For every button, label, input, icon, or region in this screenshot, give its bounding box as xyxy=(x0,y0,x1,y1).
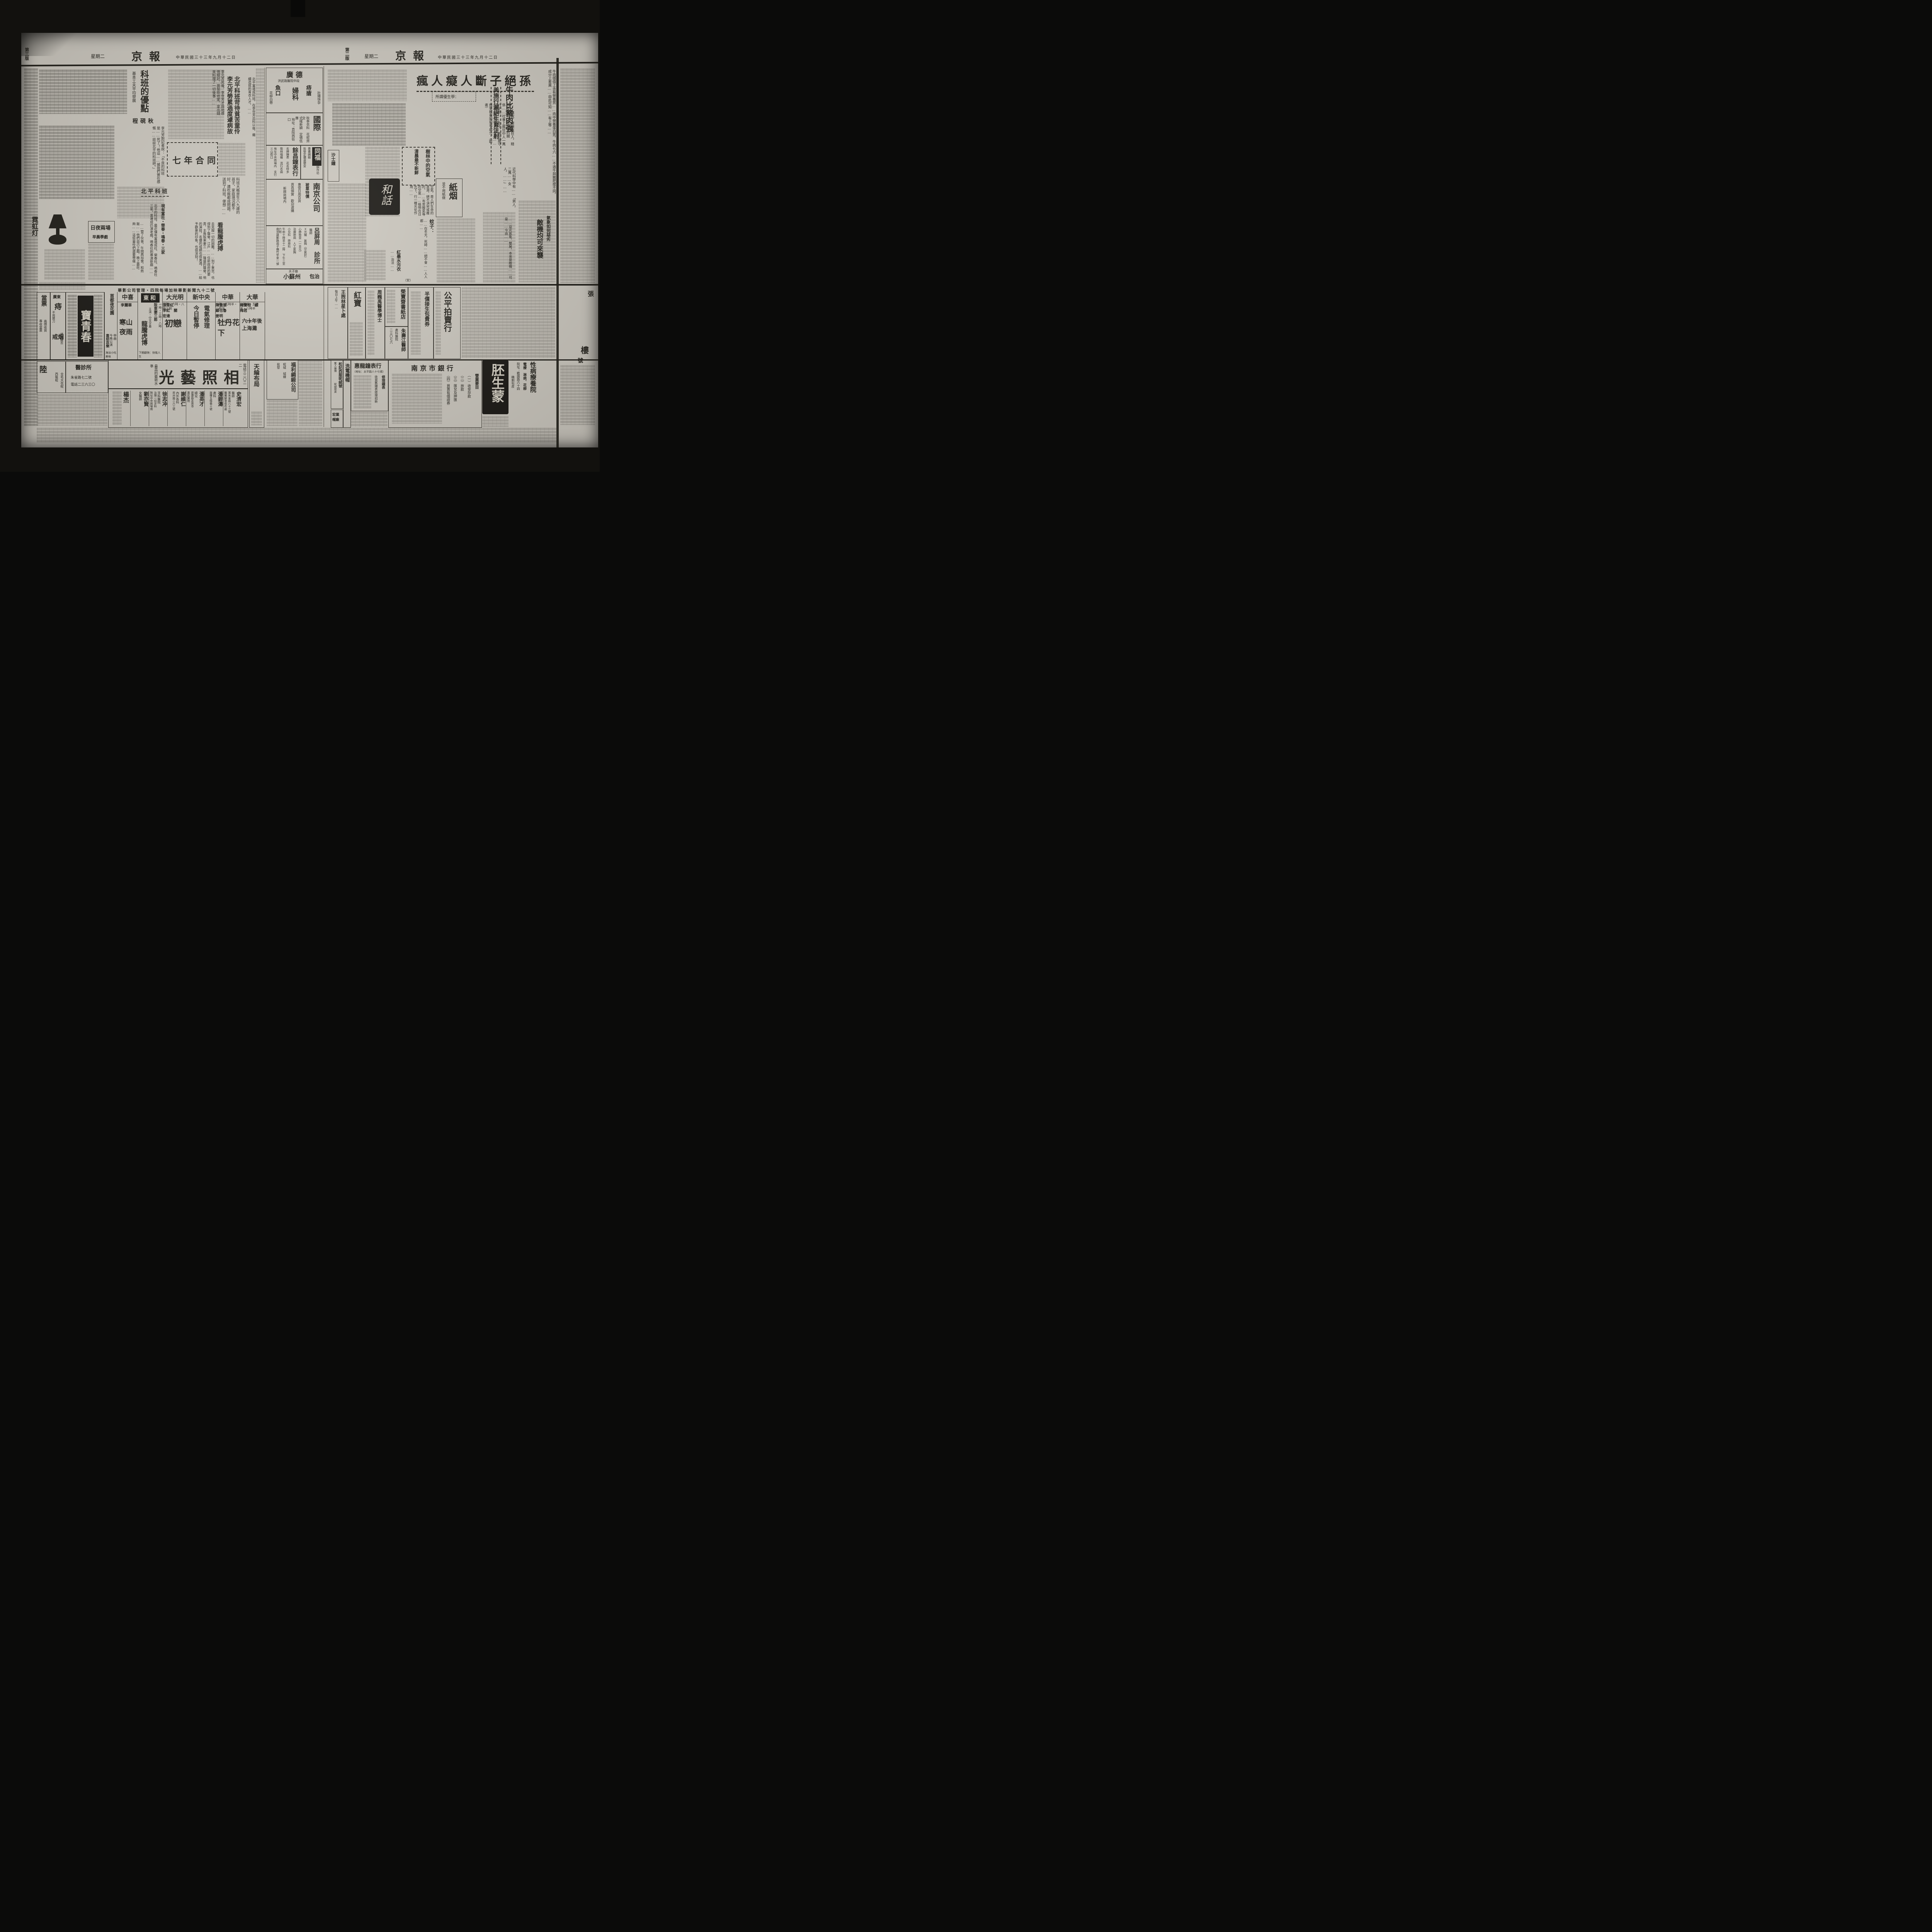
weekday-left: 星期二 xyxy=(91,53,105,60)
meishi-headline: 美施行滅絕生育注射 xyxy=(491,87,501,164)
edge-char-zhang: 張 xyxy=(588,289,594,298)
beiping-keban-body: 北平的科班，最近僅有富連成社、榮春社、鳴春社三家。富連成仍演老戲，鳴春社則專演新… xyxy=(146,204,157,279)
bank-item2: （二）放款 xyxy=(459,374,464,424)
songji-line2: 呢絨現貨 xyxy=(333,383,337,399)
gongping-auction-ad: 公平拍賣行 xyxy=(434,287,461,359)
lvpingzhou-name: 呂屏周 xyxy=(313,228,320,251)
shulin-box: 樹林中的空氣 清晨最不新鮮 xyxy=(402,147,435,185)
illegible-text-columns xyxy=(560,68,595,283)
doctor-line: 醫藥解答收件處 xyxy=(224,391,227,425)
doctor-line: 鼓樓五條巷十號 xyxy=(209,391,213,425)
nanjing-line2: 專營日用百貨 xyxy=(297,183,301,222)
doctor-line: 建康路永恩寺 xyxy=(190,391,194,425)
jiesheng-name: 半價接生包費券 xyxy=(423,291,429,355)
lamp-shade-icon xyxy=(49,214,66,228)
illegible-text-columns xyxy=(37,394,107,426)
fuli-line2: 批發 xyxy=(276,363,280,397)
keban-youdian-body: 李元芳死後，李世芳才與他感情極好，曾幫助他家，拿出錢來料理了一切後事…… xyxy=(153,70,224,116)
doctor-line: 院址中央商場南 xyxy=(150,391,153,425)
tongfu-name: 同福 xyxy=(312,147,321,166)
xingbing-hospital-ad: 性病療養院 電療 淋病、花柳 院址：瞻園路六十四 精割包皮 xyxy=(509,360,538,427)
illegible-text-columns xyxy=(437,218,475,282)
lvpingzhou-line2: 心肺檢查（一百元） xyxy=(298,228,302,266)
guangyi-side-note: 最高的藝術水準 xyxy=(149,364,158,388)
beiping-keban-subtitle: 現有富社・榮春・鳴春・三家 xyxy=(160,204,165,279)
riye-liangchang-body: ……管了伙食，午間再加食，和熱飯……他們自己上戲，晚上最吃夠……這些童伶們還要學… xyxy=(116,222,144,280)
guangde-item-yukou: 魚口 xyxy=(274,85,281,104)
nanjing-line4: 新興商場內 xyxy=(282,187,286,222)
page-edge-heavy-line xyxy=(556,58,559,447)
peisheng-name: 胚生蒙 xyxy=(488,363,505,412)
yuchang-line2: 歌林唱機 流行名曲 xyxy=(280,147,283,177)
shulin-title1: 樹林中的空氣 xyxy=(425,149,430,182)
wangxulin-fortune-ad: 王煦林星卜處 每日上午…… xyxy=(328,287,348,359)
fuli-line1: 呢絨 絨線 xyxy=(282,363,286,397)
nanjing-name: 南京公司 xyxy=(311,183,320,222)
guoji-fabric-ad: 國際 秋季衣料 花呢齊全 式樣新穎 定價低廉 地址：貢院西街口 xyxy=(266,113,323,145)
yuchang-name: 餘昌鐘表行 xyxy=(291,147,299,177)
tongfu-silk-ad: 同福 專賣綢緞 批發定價還便宜 銅作坊 xyxy=(301,145,323,179)
liyuanfang-lead: 北平富連成科班，在李世芳出科以後，繼續造就的青衣人才，…… xyxy=(248,77,255,137)
yuchang-watch-ad: 餘昌鐘表行 名牌鐘表 花名特多 歌林唱機 流行名曲 地址中央商場內 支行三山街口 xyxy=(266,145,301,179)
illegible-text-columns xyxy=(218,143,245,176)
qinian-hetong-title: 七年合同 xyxy=(172,154,219,166)
illegible-text-columns xyxy=(435,291,441,355)
wangxulin-line1: 每日上午…… xyxy=(334,290,338,336)
fengren-kicker: 所謂優生學： xyxy=(435,94,459,99)
guangdong-name: 廣東 xyxy=(53,294,61,299)
niurou-headline: 牛肉比豬肉強 xyxy=(504,86,514,170)
illegible-text-columns xyxy=(364,250,386,281)
xingbing-line2: 院址：瞻園路六十四 xyxy=(516,362,520,420)
bank-item1: （一）收受存款 xyxy=(466,374,471,424)
theater-zhonghua: 中華 二時・五時半・八時半 陳雲裳 顧也魯 姜明 主演 牡丹花下 xyxy=(215,292,240,359)
donghe-times: 一時・三時・八時 xyxy=(158,303,162,334)
newspaper-scan: 第三版 星期二 京報 中華民國三十三年九月十二日 第二版 星期二 京報 中華民國… xyxy=(0,0,600,472)
lvpingzhou-line3: 治療肺病 人工氣胸 xyxy=(293,228,296,266)
tianlun-fabric-ad: 天綸布局 xyxy=(249,360,264,428)
doctor-title: 內外各科 xyxy=(175,391,179,411)
zhonghua-name: 中華 xyxy=(216,293,240,302)
theater-xinzhongyang: 新中央 電氣修理 今日暫停 xyxy=(187,292,216,359)
qinian-hetong-body: 科班大概是生八九歲的孩子，家庭境況都不好，連吃飯都成問題，送到了科班，便想…… xyxy=(167,177,240,215)
guangdong-line1: 不用開刀 xyxy=(52,311,55,330)
lvpingzhou-line1: Ｘ光機 氣胸（空氣針） xyxy=(304,228,307,266)
huilong-sub: （地址：太平路八十七號） xyxy=(353,370,385,374)
dangpiao-line1: 高價收買 xyxy=(43,320,47,354)
zhensuo-name: 醫診所 xyxy=(75,364,92,371)
doctor-listing-panbitao: 潘碧濤 產科 鼓樓五條巷十號 xyxy=(204,391,223,426)
zhongxi-name: 中喜 xyxy=(117,293,138,302)
zhensuo-line1: 朱雀路七二號 xyxy=(71,375,92,380)
zhensuo-line2: 電話二三六三〇 xyxy=(71,382,95,387)
hehua-calligraphy-stamp: 和話 xyxy=(369,179,400,215)
yehuayuan-cast: 申曲 xyxy=(113,334,117,345)
donghe-film: 龍騰虎博 xyxy=(140,321,148,354)
illegible-text-columns xyxy=(94,295,102,357)
guoji-line2: 式樣新穎 定價低廉 xyxy=(294,116,303,143)
daguangming-name: 大光明 xyxy=(163,293,187,302)
doctor-listing-panyingcai: 潘英才 婦兒 建康路永恩寺 惠民醫院 xyxy=(186,391,205,426)
lvpingzhou-title1: 醫師 xyxy=(309,228,313,240)
rongbaozhai-name: 榮寶齋書紙店 xyxy=(399,289,405,325)
donghe-name: 東和 xyxy=(141,293,160,303)
huilong-line2: 收買舊鐘表修理如新 xyxy=(374,375,378,408)
tongfu-line2: 批發定價還便宜 xyxy=(303,147,306,177)
guangyi-name: 光藝照相 xyxy=(159,365,245,388)
songji-tailor-ad: 松記西服呢絨號 驚人廉價 呢絨現貨 xyxy=(331,360,343,409)
guangde-name: 廣德 xyxy=(286,70,305,80)
guangyi-rule xyxy=(109,388,248,389)
doctor-line: 寓朱雀路八十三號 xyxy=(228,391,231,425)
doctor-name: 謝維仁 xyxy=(179,391,185,418)
neon-brand: 霓虹灯 xyxy=(30,216,38,278)
lvpingzhou-clinic-ad: 呂屏周 醫師 診所 Ｘ光機 氣胸（空氣針） 心肺檢查（一百元） 治療肺病 人工氣… xyxy=(266,226,323,269)
illegible-text-columns xyxy=(350,322,363,356)
wangxulin-name: 王煦林星卜處 xyxy=(340,290,346,348)
meishi-body: 近代科學中有……「男人，二萬……女人，……」…… xyxy=(483,167,515,211)
wenzi-head: 蚊子： xyxy=(429,219,434,238)
theater-donghe: 東和 一時・三時・八時 阪東妻三郎 主演・中文字幕 龍騰虎博 下期獻映：快哉人生 xyxy=(138,292,163,359)
doctor-name: 史濟宏 xyxy=(235,391,241,418)
guangde-item-hualiu: 花柳白帶 xyxy=(269,91,273,111)
longteng-headline: 看龍騰虎搏 xyxy=(216,222,224,282)
keban-youdian-headline: 科班的優點 xyxy=(138,70,149,136)
doctor-name: 徐志冲 xyxy=(161,391,167,418)
hongbao-name: 紅寶 xyxy=(352,291,362,318)
doctor-title: 女醫師 xyxy=(138,391,142,411)
beiping-keban-title: 北平科班 xyxy=(141,187,169,197)
zhensuo-ad: 醫診所 朱雀路七二號 電話二三六三〇 xyxy=(66,361,108,393)
fengren-kicker-box: 所謂優生學： xyxy=(432,92,476,102)
tongfu-line3: 銅作坊 xyxy=(316,166,320,177)
dangpiao-name: 當票 xyxy=(40,295,48,316)
wenzi-column: 蚊子： ……在冬天，死時……絕不會……人人都…… （安） xyxy=(403,218,435,283)
huilong-name: 惠龍鐘表行 xyxy=(354,362,381,370)
dangpiao-line2: 專收當票 xyxy=(39,320,43,354)
lvpingzhou-line6: 南京建鄴路鴿子橋竹竿里一號 xyxy=(276,228,279,266)
illegible-text-columns xyxy=(256,68,264,283)
guangde-item-fuke: 婦科 xyxy=(290,87,298,110)
hongmo-body: ……治法…… xyxy=(390,250,394,281)
tianlun-name: 天綸布局 xyxy=(253,364,260,410)
zhiyan-sub: 並不用紙做 xyxy=(441,182,445,214)
hehua-label: 和話 xyxy=(379,184,393,211)
theater-daguangming: 大光明 三時・六時・八時三刻 張翠紅 李紅 關宏達 主演 初戀 xyxy=(162,292,187,359)
page-fold-line xyxy=(323,66,324,427)
riye-liangchang-subtitle: 早晨學戲 xyxy=(92,234,108,240)
hongmo-head: 紅墨水污衣 xyxy=(396,250,401,281)
donghe-cast: 阪東妻三郎 xyxy=(153,303,157,338)
liyuanfang-headline-line2: 李元芳勞累過度遽病故 xyxy=(226,76,233,134)
illegible-text-columns xyxy=(482,416,509,427)
guangde-hospital-ad: 廣德 洪武路醫院中段 痔瘡 魚口 婦科 花柳白帶 壯陽快孕 xyxy=(266,68,323,113)
qixiang-body: ……惡劣氣象，雙層，本來是敵機……可是……今由…… xyxy=(477,218,512,282)
illegible-text-columns xyxy=(299,360,322,426)
lu-line2: 西裝呢 xyxy=(54,372,58,391)
illegible-text-columns xyxy=(462,287,555,358)
xiaosuzhou-extra: 包治 xyxy=(310,272,320,280)
illegible-text-columns xyxy=(37,428,556,442)
huilong-line1: 修理鐘表 xyxy=(381,375,385,408)
edge-char-hao: 號 xyxy=(578,357,583,364)
illegible-text-columns xyxy=(392,374,442,424)
zhushoujiang-line1: 產科醫院 xyxy=(395,328,398,357)
yuchang-line3: 地址中央商場內 支行三山街口 xyxy=(270,147,277,177)
doctor-line: 惠民醫院 xyxy=(187,391,190,425)
chengyanqiu-subhead: 程硯秋 xyxy=(133,117,156,125)
illegible-text-columns xyxy=(39,282,85,290)
xinzhongyang-name: 新中央 xyxy=(187,293,216,302)
hongmo-column: 紅墨水污衣 ……治法…… xyxy=(363,249,402,282)
huilong-watch-ad: 惠龍鐘表行 （地址：太平路八十七號） 修理鐘表 收買舊鐘表修理如新 xyxy=(351,360,388,411)
illegible-text-columns xyxy=(351,412,388,427)
guangde-sub: 洪武路醫院中段 xyxy=(278,79,299,83)
baoqingchun-ad: 寶青春 xyxy=(66,292,104,360)
illegible-text-columns xyxy=(267,400,298,426)
illegible-text-columns xyxy=(367,291,374,355)
guangde-item-zhichuang: 痔瘡 xyxy=(305,85,312,104)
lu-line1: 全毛大衣呢 xyxy=(60,372,64,391)
dahua-name: 大華 xyxy=(240,293,265,302)
lu-ad: 陸 全毛大衣呢 西裝呢 xyxy=(37,361,66,393)
lvpingzhou-title2: 診所 xyxy=(313,252,320,267)
xiaosuzhou-name: 小蘇州 xyxy=(283,272,301,281)
jiesheng-coupon-ad: 半價接生包費券 xyxy=(408,287,434,359)
wenzi-body: ……在冬天，死時……絕不會……人人都…… xyxy=(404,219,427,281)
shashizhong-label: 沙士鐘 xyxy=(330,153,336,179)
masthead-rule xyxy=(21,62,598,66)
lamp-base-icon xyxy=(49,235,66,245)
bank-sub: 營業要目 xyxy=(474,374,479,401)
illegible-text-columns xyxy=(88,243,114,280)
paper-title-right: 京報 xyxy=(395,48,431,63)
songji-name: 松記西服呢絨號 xyxy=(337,362,342,407)
xinzhongyang-line2: 今日暫停 xyxy=(192,305,200,355)
column-divider xyxy=(264,68,265,283)
paper-title-left: 京報 xyxy=(131,48,167,64)
qixiang-headline1: 氣象如何惡劣 xyxy=(546,216,551,252)
keban-youdian-body2: 李元芳對記者說：「不良的科班是……死了！他這……據我們實在感慨……談談北平的科班… xyxy=(117,126,164,184)
bank-item4: （四）買賣有價證券 xyxy=(446,374,450,424)
dahua-film: 六十年後上海灘 xyxy=(242,317,265,352)
nanjing-line1: 被單特價 xyxy=(304,183,309,222)
qixiang-headline2: 敵機均可來襲 xyxy=(535,219,543,282)
doctor-title: 醫師 xyxy=(231,391,235,407)
qinian-hetong-box: 七年合同 xyxy=(167,142,218,177)
rongbaozhai-ad: 榮寶齋書紙店 xyxy=(385,287,408,327)
fengren-headline: 瘋人癡人斷子絕孫 xyxy=(417,71,534,92)
dangpiao-ad: 當票 高價收買 專收當票 xyxy=(37,292,50,360)
theater-dahua: 大華 二時半・五時半・八時半 韓蘭根 顧梅君 主演 六十年後上海灘 xyxy=(240,292,265,359)
donghe-note: 主演・中文字幕 xyxy=(148,308,152,338)
riye-liangchang-title: 日夜兩場 xyxy=(90,224,111,231)
peisheng-brand-block: 胚生蒙 xyxy=(482,360,509,414)
zhouweiyu-name: 周巍禹醫學博士 xyxy=(376,290,382,355)
doctor-title: 婦兒 xyxy=(194,391,198,407)
bank-item3: （三）匯兌及押匯 xyxy=(452,374,457,424)
daguangming-film: 初戀 xyxy=(165,317,182,352)
illegible-text-columns xyxy=(354,375,371,408)
doctor-name: 潘碧濤 xyxy=(216,391,223,418)
tongfu-line1: 專賣綢緞 xyxy=(308,147,311,177)
illegible-text-columns xyxy=(328,70,407,101)
guangyi-phone: 電話三二〇二二 xyxy=(238,364,247,388)
gongping-name: 公平拍賣行 xyxy=(442,291,452,355)
guangdong-big1: 痔 xyxy=(54,301,62,311)
page-number-left: 第三版 xyxy=(24,48,29,67)
zhongxi-film: 寒山夜雨 xyxy=(119,317,138,352)
liyuanfang-headline: 北平科班苛待貧苦童伶 李元芳勞累過度遽病故 xyxy=(226,76,241,137)
weekday-right: 星期二 xyxy=(364,53,378,60)
shulin-title2: 清晨最不新鮮 xyxy=(413,149,419,182)
guoji-name: 國際 xyxy=(311,116,321,143)
doctor-listing-shijihong: 史濟宏 醫師 寓朱雀路八十三號 醫藥解答收件處 xyxy=(223,391,242,426)
section-rule-top xyxy=(21,284,598,286)
riye-liangchang-box: 日夜兩場 早晨學戲 xyxy=(88,221,115,243)
liyuanfang-headline-line1: 北平科班苛待貧苦童伶 xyxy=(234,76,241,134)
date-right: 中華民國三十三年九月十二日 xyxy=(438,54,498,60)
illegible-text-columns xyxy=(411,291,421,355)
scan-registration-mark xyxy=(291,0,305,17)
doctor-name: 潘英才 xyxy=(198,391,204,418)
guoji-line3: 地址：貢院西街口 xyxy=(287,118,295,143)
keban-youdian-subtitle: 基本工夫平均發展 xyxy=(131,71,136,135)
doctor-title: 牙科醫院 xyxy=(157,391,161,411)
doctor-line: 治理一切牙科 xyxy=(153,391,157,425)
illegible-text-columns xyxy=(328,184,366,282)
edge-char-lou: 樓 xyxy=(581,344,589,356)
fuli-name: 福利綢緞公司 xyxy=(289,362,296,398)
ximao-ad: 洗電機帽 xyxy=(343,360,351,428)
illegible-text-columns xyxy=(332,103,406,146)
guangdong-ad: 廣東 痔 不用開刀 戒烟 絕無痛苦 xyxy=(50,292,66,360)
lu-name: 陸 xyxy=(39,363,47,374)
illegible-text-columns xyxy=(560,365,595,425)
doctor-title: 產科 xyxy=(213,391,216,407)
nanjing-line3: 貨真價實 歡迎選購 xyxy=(290,183,294,222)
shulin-body: 空氣，是人們生命的泉源，絕不須臾或離的。……有炭酸氣等的空氣……植物在日光下，行… xyxy=(402,185,434,217)
doctor-listing-yangjie: 楊杰 xyxy=(112,391,130,426)
illegible-text-columns xyxy=(387,290,395,324)
xiaosuzhou-ad: 小蘇州 夫子廟 包治 xyxy=(266,269,323,284)
zhouweiyu-doctor-ad: 周巍禹醫學博士 xyxy=(366,287,385,359)
lamp-illustration xyxy=(46,214,69,247)
doctor-listing-xieweiren: 謝維仁 內外各科 昇州路二六三號 xyxy=(167,391,186,426)
zhonghua-film: 牡丹花下 xyxy=(218,317,240,352)
nanjing-bank-ad: 南京市銀行 營業要目 （一）收受存款 （二）放款 （三）匯兌及押匯 （四）買賣有… xyxy=(388,360,482,428)
zhiyan-box: 紙烟 並不用紙做 xyxy=(436,179,463,217)
illegible-text-columns xyxy=(112,391,122,425)
hongye-name: 宏業帽廠 xyxy=(332,412,342,422)
bank-name: 南京市銀行 xyxy=(411,363,456,372)
masthead-shade xyxy=(21,33,79,56)
xingbing-name: 性病療養院 xyxy=(529,362,536,420)
shashizhong-box: 沙士鐘 xyxy=(328,150,339,182)
xiaosuzhou-sub: 夫子廟 xyxy=(289,269,298,274)
zhushoujiang-line2: 二三〇七六 xyxy=(389,328,393,357)
donghe-next: 下期獻映：快哉人生 xyxy=(139,351,163,359)
longteng-body: 去克服一切的困難，……到了東京，也得到了聲譽，江戶……任新政府的要責，主角阪東妻… xyxy=(171,222,214,280)
illegible-text-columns xyxy=(251,412,262,425)
theater-zhongxi: 中喜 李麗華 主演 寒山夜雨 xyxy=(117,292,138,359)
doctor-listing-xuzhichong: 徐志冲 牙科醫院 治理一切牙科 院址中央商場南 xyxy=(149,391,168,426)
xinzhongyang-line1: 電氣修理 xyxy=(203,305,210,355)
songji-line1: 驚人廉價 xyxy=(333,362,337,381)
guangdong-line2: 絕無痛苦 xyxy=(60,333,63,356)
yehuayuan-name: 首都夜花園 xyxy=(109,294,114,332)
wenzi-sig: （安） xyxy=(403,278,413,282)
niurou-body: 牛肉價值上含有營養質……肉中營養蛋白質，牛肉七六……不過牛與豬肥瘦不同，成分上差… xyxy=(519,70,556,199)
illegible-text-columns xyxy=(39,70,127,114)
illegible-text-columns xyxy=(68,295,77,357)
doctor-name: 楊杰 xyxy=(122,391,129,418)
nanjing-company-ad: 南京公司 被單特價 專營日用百貨 貨真價實 歡迎選購 新興商場內 xyxy=(266,179,323,226)
fuli-silk-ad: 福利綢緞公司 呢絨 絨線 批發 xyxy=(267,360,298,400)
baoqingchun-name: 寶青春 xyxy=(78,296,94,357)
xingbing-line3: 精割包皮 xyxy=(511,376,515,418)
doctor-listing-liuyixian: 劉亦賢 女醫師 xyxy=(130,391,149,426)
zhiyan-title: 紙烟 xyxy=(447,183,458,214)
xingbing-line1: 電療 淋病、花柳 xyxy=(522,362,526,420)
theater-yehuayuan: 首都夜花園 申曲 今晚公演 喜怒哀樂 海派小吃美味 xyxy=(104,292,117,359)
guangyi-photo-ad: 光藝照相 最高的藝術水準 電話三二〇二二 史濟宏 醫師 寓朱雀路八十三號 醫藥解… xyxy=(108,360,248,428)
newspaper-spread: 第三版 星期二 京報 中華民國三十三年九月十二日 第二版 星期二 京報 中華民國… xyxy=(21,33,598,447)
hongbao-ad: 紅寶 xyxy=(348,287,366,359)
yehuayuan-next: 海派小吃美味 xyxy=(105,351,117,359)
lvpingzhou-line5: 午前十時至十二時 下午三至六時 xyxy=(278,228,286,266)
doctor-line: 昇州路二六三號 xyxy=(172,391,175,425)
ximao-name: 洗電機帽 xyxy=(344,364,350,425)
guangde-item-zhuangyang: 壯陽快孕 xyxy=(316,91,321,111)
doctor-name: 劉亦賢 xyxy=(142,391,148,418)
lvpingzhou-line4: 小兒科 肺癆科 xyxy=(287,228,291,266)
hongye-hat-ad: 宏業帽廠 xyxy=(331,410,343,428)
illegible-text-columns xyxy=(39,126,114,199)
zhushoujiang-doctor-ad: 朱壽江醫師 產科醫院 二三〇七六 xyxy=(385,327,408,359)
yuchang-line1: 名牌鐘表 花名特多 xyxy=(286,147,289,177)
zhushoujiang-name: 朱壽江醫師 xyxy=(400,328,406,357)
illegible-text-columns xyxy=(44,249,85,280)
date-left: 中華民國三十三年九月十二日 xyxy=(176,54,236,60)
